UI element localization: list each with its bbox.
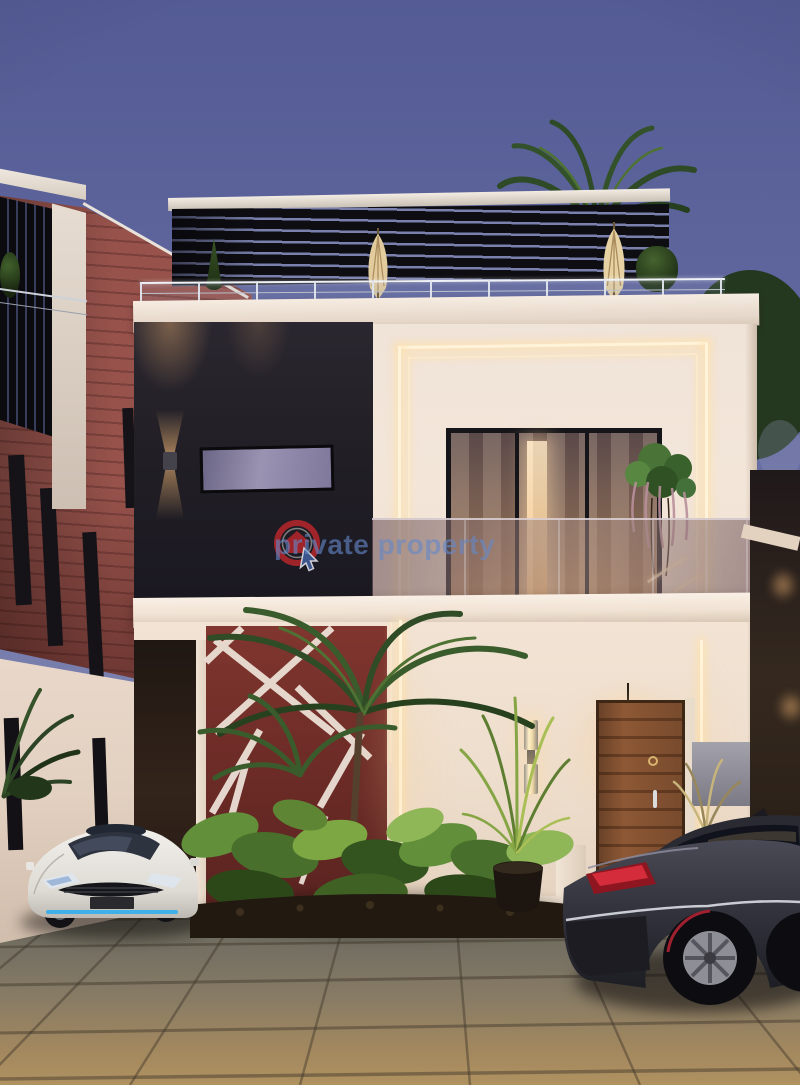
neighbour-sconce-glow [776, 690, 800, 724]
watermark: private property [268, 510, 588, 580]
property-listing-photo: private property [0, 0, 800, 1085]
door-peephole [648, 756, 658, 766]
left-corner-plant [0, 676, 80, 806]
watermark-brand-text: private property [274, 529, 495, 561]
dark-sedan-car [558, 770, 800, 1022]
left-building-white-wall [52, 194, 86, 509]
updown-wall-sconce [163, 452, 177, 470]
horizontal-slot-window [200, 445, 335, 494]
left-building-louver-screen [0, 192, 54, 437]
potted-areca-palm [455, 688, 575, 923]
left-building-fascia [0, 166, 86, 200]
neighbour-sconce-glow [768, 568, 798, 602]
white-hatchback-car [14, 794, 210, 940]
